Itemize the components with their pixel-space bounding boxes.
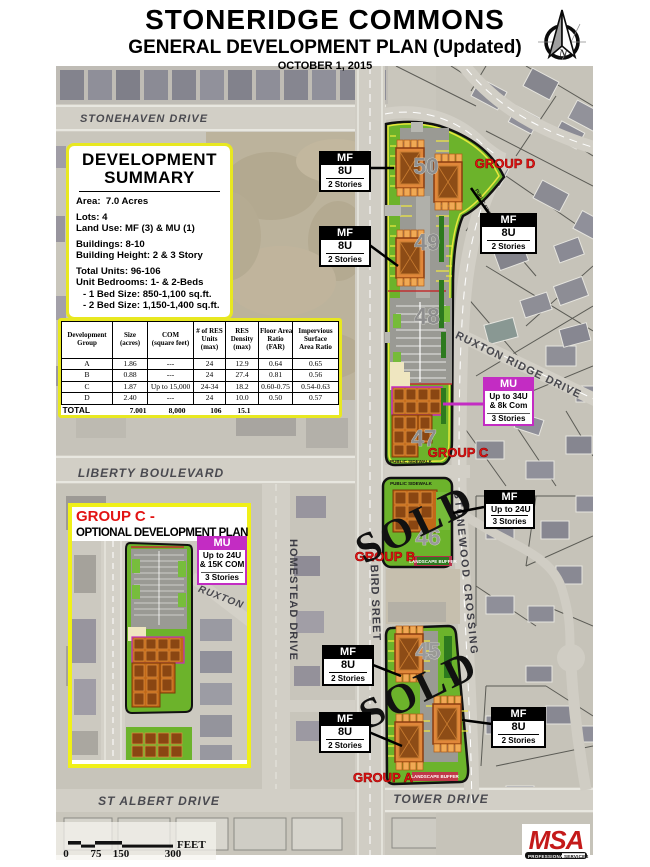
svg-text:PUBLIC SIDEWALK: PUBLIC SIDEWALK bbox=[390, 459, 433, 464]
svg-text:STONEHAVEN DRIVE: STONEHAVEN DRIVE bbox=[80, 113, 208, 125]
svg-text:300: 300 bbox=[165, 848, 182, 860]
svg-text:FEET: FEET bbox=[177, 839, 206, 851]
svg-text:GROUP D: GROUP D bbox=[475, 156, 535, 171]
svg-text:0: 0 bbox=[63, 848, 69, 860]
svg-text:N: N bbox=[558, 46, 569, 61]
svg-text:48: 48 bbox=[414, 303, 440, 329]
svg-text:PUBLIC SIDEWALK: PUBLIC SIDEWALK bbox=[390, 481, 433, 486]
svg-text:GROUP A: GROUP A bbox=[353, 770, 414, 785]
svg-text:MSA: MSA bbox=[529, 825, 584, 855]
svg-text:49: 49 bbox=[414, 229, 440, 255]
svg-text:GROUP C: GROUP C bbox=[428, 445, 489, 460]
svg-text:TOWER DRIVE: TOWER DRIVE bbox=[393, 792, 488, 806]
svg-text:LIBERTY BOULEVARD: LIBERTY BOULEVARD bbox=[78, 466, 224, 480]
svg-text:LANDSCAPE BUFFER: LANDSCAPE BUFFER bbox=[409, 559, 457, 564]
svg-text:LANDSCAPE BUFFER: LANDSCAPE BUFFER bbox=[411, 774, 459, 779]
svg-text:HOMESTEAD DRIVE: HOMESTEAD DRIVE bbox=[287, 539, 299, 661]
svg-text:50: 50 bbox=[413, 153, 439, 179]
svg-text:PROFESSIONAL: PROFESSIONAL bbox=[528, 854, 567, 859]
svg-text:SERVICES: SERVICES bbox=[564, 854, 589, 859]
svg-text:ST ALBERT DRIVE: ST ALBERT DRIVE bbox=[98, 794, 220, 808]
svg-text:75: 75 bbox=[91, 848, 103, 860]
svg-text:150: 150 bbox=[113, 848, 130, 860]
